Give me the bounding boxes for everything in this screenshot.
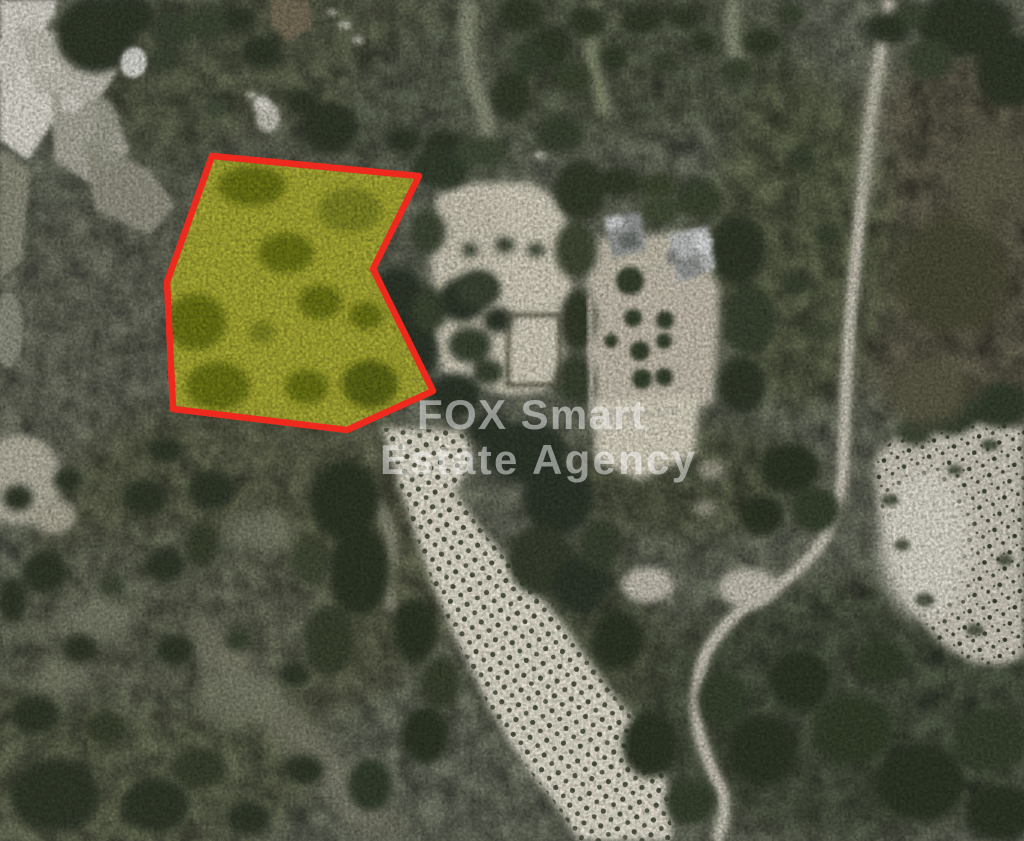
svg-text:Estate Agency: Estate Agency [380,436,696,483]
svg-text:FOX Smart: FOX Smart [417,391,645,438]
